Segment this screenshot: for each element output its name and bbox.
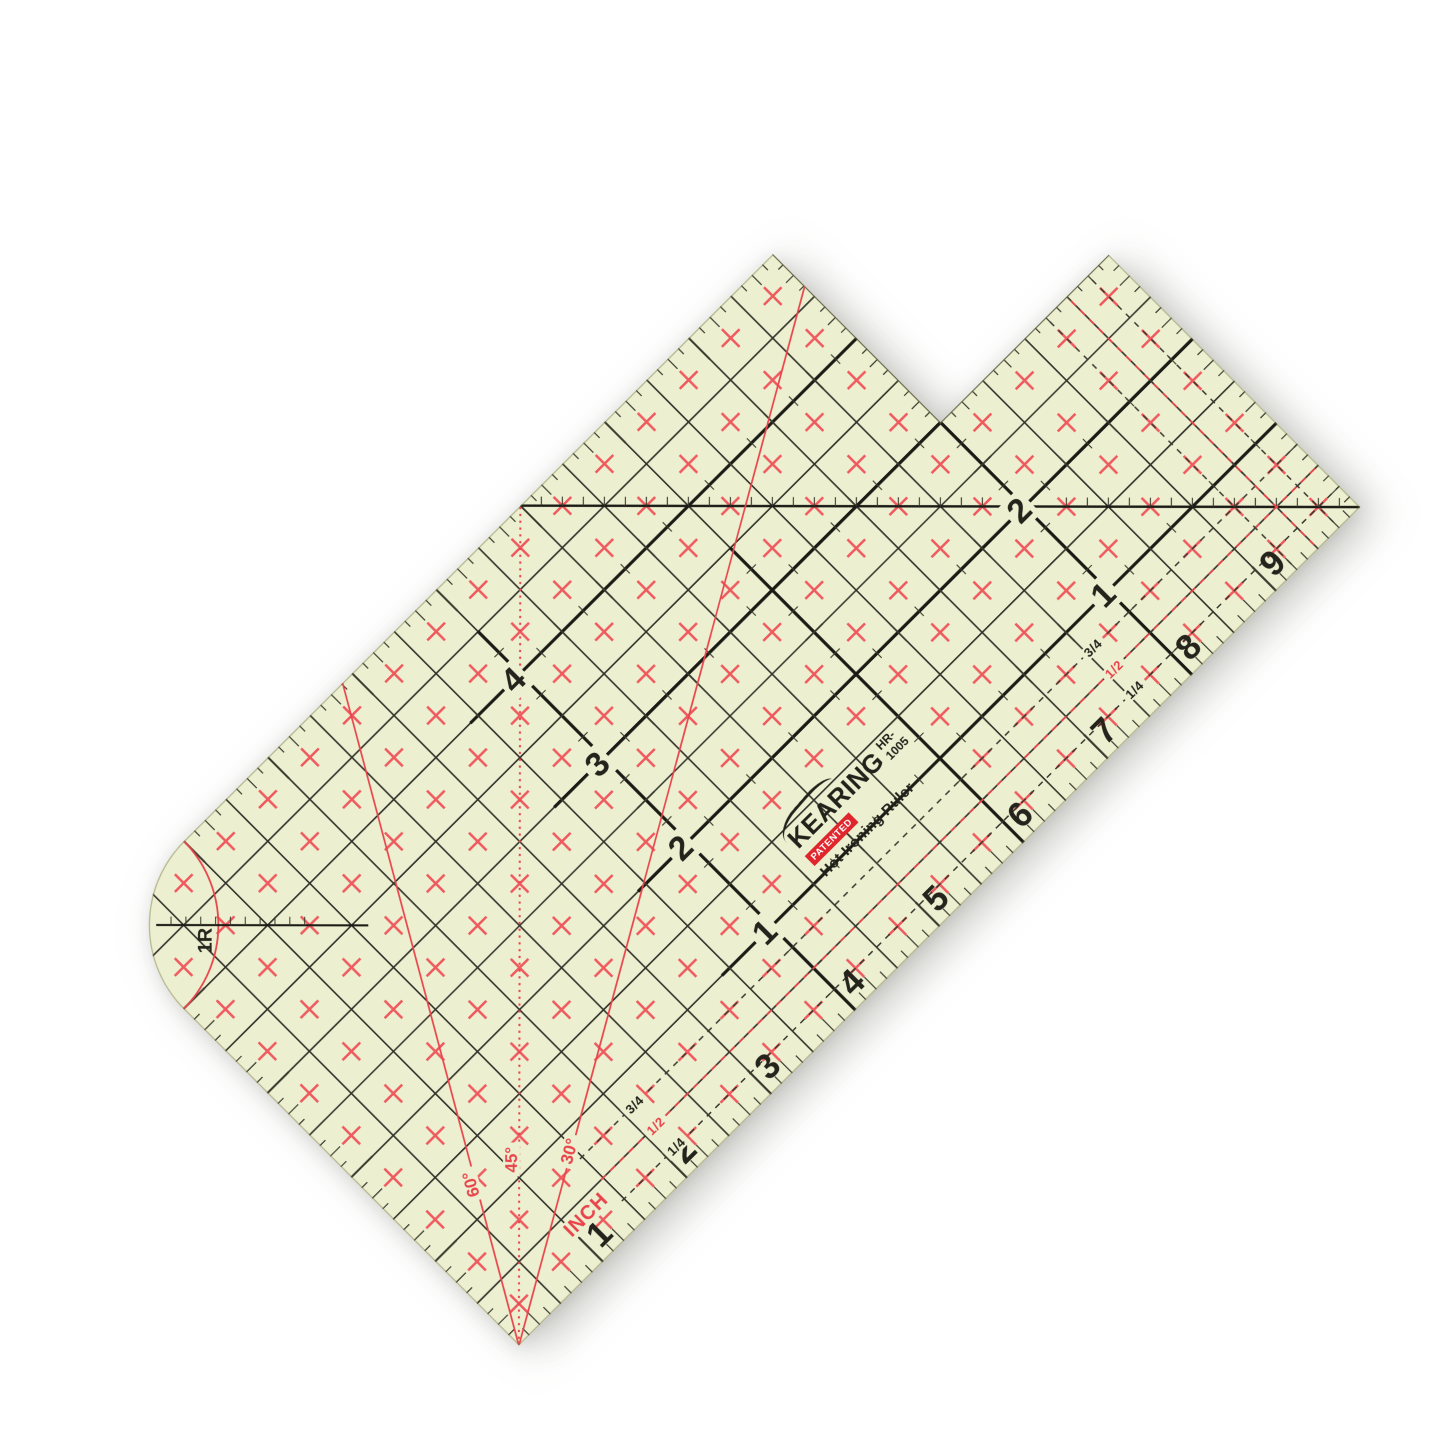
angle-label: 45° xyxy=(503,1143,520,1177)
inner-scale-right-number: 1 xyxy=(1082,574,1125,617)
hot-ironing-ruler: 1234567894321213/43/41/21/21/41/460°45°3… xyxy=(100,86,1361,1345)
inner-scale-left-number: 1 xyxy=(744,911,787,954)
fraction-label-right: 1/4 xyxy=(1120,676,1149,705)
bottom-scale-number: 8 xyxy=(1169,628,1207,667)
bottom-scale-number: 7 xyxy=(1085,712,1123,751)
fraction-label-left: 3/4 xyxy=(620,1090,649,1119)
bottom-scale-number: 3 xyxy=(749,1047,787,1086)
bottom-scale-number: 4 xyxy=(833,963,871,1002)
fraction-label-right: 1/2 xyxy=(1099,655,1128,684)
corner-radius-label: 1R xyxy=(196,928,216,954)
bottom-scale-number: 9 xyxy=(1254,544,1292,583)
bottom-scale-number: 5 xyxy=(917,880,955,919)
inner-scale-left-number: 3 xyxy=(576,743,619,786)
photo-canvas: 1234567894321213/43/41/21/21/41/460°45°3… xyxy=(0,0,1445,1445)
fraction-label-left: 1/2 xyxy=(641,1111,670,1140)
ruler-labels: 1234567894321213/43/41/21/21/41/460°45°3… xyxy=(100,86,1361,1345)
angle-label: 60° xyxy=(459,1166,484,1203)
fraction-label-right: 3/4 xyxy=(1078,634,1107,663)
bottom-scale-number: 6 xyxy=(1001,796,1039,835)
ruler-shadow-wrap: 1234567894321213/43/41/21/21/41/460°45°3… xyxy=(100,86,1361,1345)
angle-label: 30° xyxy=(557,1133,582,1170)
inner-scale-right-number: 2 xyxy=(998,489,1041,532)
inner-scale-left-number: 4 xyxy=(492,659,535,702)
inner-scale-left-number: 2 xyxy=(660,827,703,870)
